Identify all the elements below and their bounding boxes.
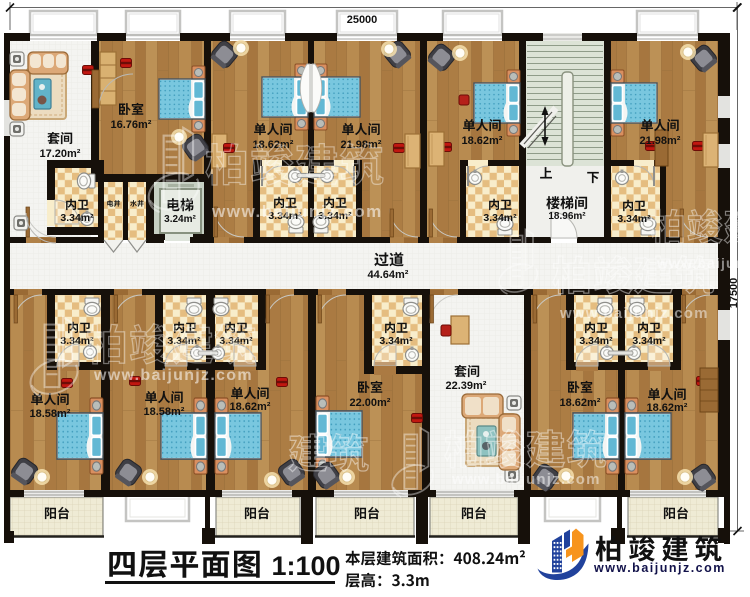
svg-text:www.baijunjz.com: www.baijunjz.com	[211, 202, 383, 221]
svg-text:3.34m²: 3.34m²	[60, 212, 94, 224]
svg-text:21.98m²: 21.98m²	[640, 135, 681, 147]
svg-text:1:100: 1:100	[271, 551, 340, 581]
svg-text:22.39m²: 22.39m²	[446, 380, 487, 392]
svg-text:18.58m²: 18.58m²	[30, 408, 71, 420]
svg-text:www.baijunjz.com: www.baijunjz.com	[559, 305, 709, 322]
svg-text:3.34m²: 3.34m²	[579, 335, 613, 347]
svg-text:18.58m²: 18.58m²	[144, 406, 185, 418]
svg-text:22.00m²: 22.00m²	[350, 397, 391, 409]
svg-text:www.baijunjz.com: www.baijunjz.com	[93, 367, 253, 384]
svg-text:18.96m²: 18.96m²	[548, 211, 586, 222]
svg-text:44.64m²: 44.64m²	[368, 269, 409, 281]
svg-text:3.34m²: 3.34m²	[617, 213, 651, 225]
svg-text:17.20m²: 17.20m²	[40, 148, 81, 160]
svg-text:18.62m²: 18.62m²	[647, 402, 688, 414]
svg-text:3.24m²: 3.24m²	[164, 214, 196, 225]
svg-text:3.34m²: 3.34m²	[632, 335, 666, 347]
svg-text:18.62m²: 18.62m²	[462, 135, 503, 147]
svg-text:18.62m²: 18.62m²	[230, 401, 271, 413]
svg-text:3.34m²: 3.34m²	[379, 335, 413, 347]
svg-text:25000: 25000	[347, 14, 378, 26]
svg-text:www.baijunjz.com: www.baijunjz.com	[593, 561, 726, 575]
svg-text:16.76m²: 16.76m²	[111, 119, 152, 131]
svg-text:www.baijunjz.com: www.baijunjz.com	[656, 255, 750, 271]
svg-text:3.34m²: 3.34m²	[483, 212, 517, 224]
svg-text:18.62m²: 18.62m²	[560, 397, 601, 409]
svg-text:www.baijunjz.com: www.baijunjz.com	[451, 471, 601, 488]
